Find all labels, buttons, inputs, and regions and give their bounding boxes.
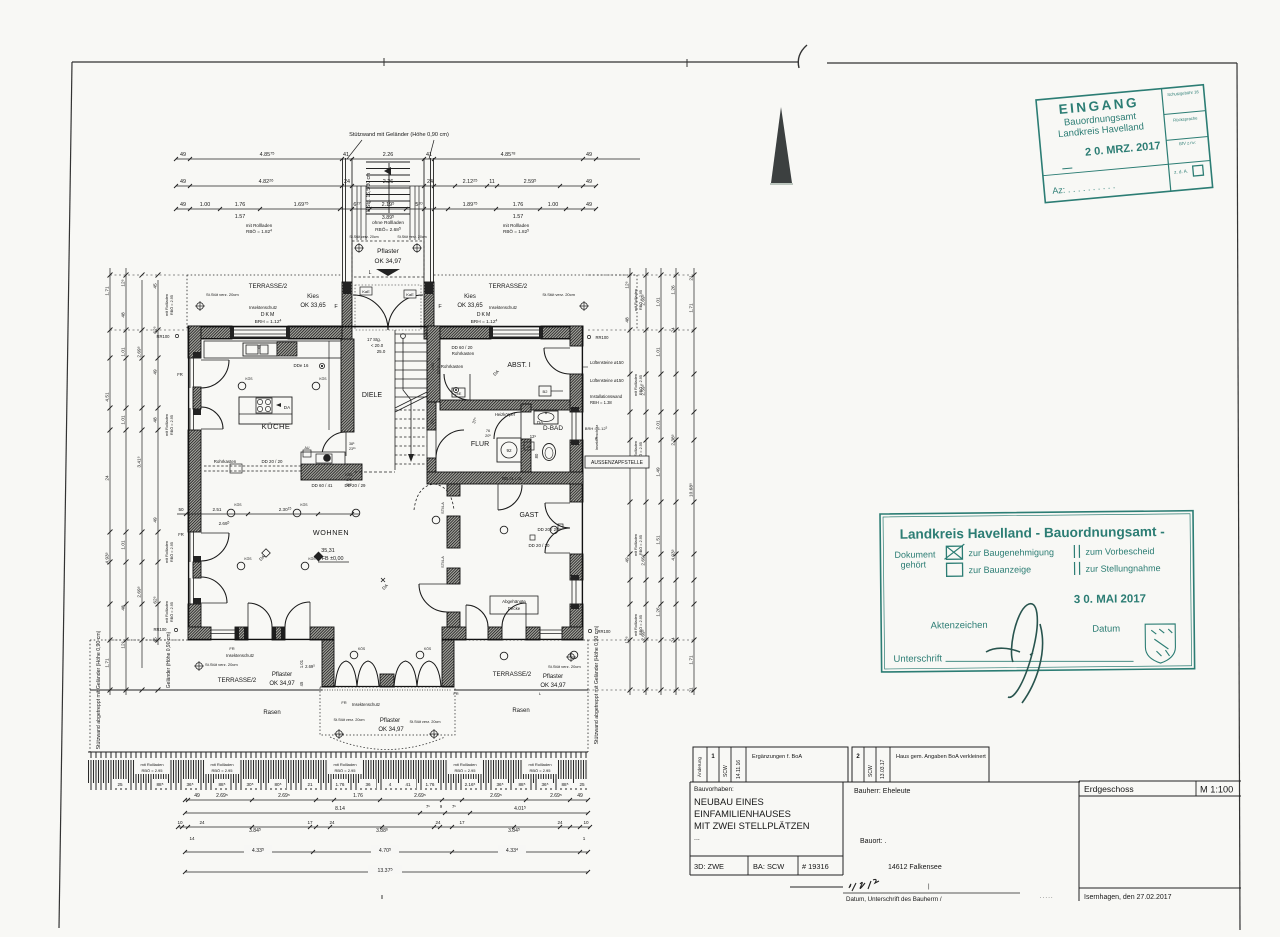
svg-text:24: 24 — [329, 820, 335, 825]
svg-text:mit Rollladen: mit Rollladen — [453, 762, 476, 767]
svg-text:9: 9 — [440, 804, 443, 809]
svg-text:RBÖ = 1.825: RBÖ = 1.825 — [503, 228, 529, 234]
svg-text:zur Stellungnahme: zur Stellungnahme — [1086, 563, 1161, 574]
svg-text:1.8975: 1.8975 — [463, 201, 478, 208]
svg-text:49: 49 — [180, 179, 186, 185]
svg-text:DDe 16: DDe 16 — [294, 363, 309, 368]
svg-text:Insektenschutz: Insektenschutz — [352, 702, 380, 707]
svg-text:Rohrkasten: Rohrkasten — [452, 351, 475, 356]
svg-text:2.26: 2.26 — [383, 179, 394, 185]
svg-text:FR: FR — [453, 691, 458, 696]
svg-text:48: 48 — [121, 312, 127, 318]
svg-text:1.71: 1.71 — [689, 655, 695, 665]
svg-text:KÖS: KÖS — [308, 557, 316, 561]
svg-text:1.00: 1.00 — [200, 202, 211, 208]
svg-text:# 19316: # 19316 — [802, 862, 829, 871]
svg-text:St.Stüt verz. 20cm: St.Stüt verz. 20cm — [548, 664, 581, 669]
svg-text:3D: ZWE: 3D: ZWE — [694, 862, 724, 871]
svg-text:36⁵: 36⁵ — [186, 782, 193, 787]
svg-text:z. d. A.: z. d. A. — [1174, 169, 1188, 175]
svg-text:DA: DA — [381, 583, 389, 591]
svg-text:. . . . .: . . . . . — [1040, 894, 1053, 900]
svg-text:AB: AB — [527, 445, 532, 449]
svg-text:FLUR: FLUR — [471, 441, 489, 448]
svg-text:14: 14 — [189, 836, 195, 841]
svg-text:L: L — [369, 270, 372, 276]
svg-text:KÖS: KÖS — [245, 377, 253, 381]
svg-text:21: 21 — [307, 782, 313, 787]
svg-text:36: 36 — [365, 782, 371, 787]
svg-text:STI/LA: STI/LA — [441, 556, 445, 568]
svg-text:RBÖ = 2.95: RBÖ = 2.95 — [170, 415, 174, 435]
svg-text:3.886: 3.886 — [376, 828, 388, 834]
svg-text:1.71: 1.71 — [105, 658, 111, 668]
svg-text:BfV z.nv:: BfV z.nv: — [1179, 140, 1196, 146]
svg-text:St.Stüt verz. 20cm: St.Stüt verz. 20cm — [333, 718, 364, 722]
svg-text:49: 49 — [180, 202, 186, 208]
svg-text:RBÖ = 2.95: RBÖ = 2.95 — [529, 768, 551, 773]
svg-text:17: 17 — [459, 820, 465, 825]
svg-text:49: 49 — [577, 793, 583, 799]
svg-text:OK 34,97: OK 34,97 — [540, 683, 566, 689]
svg-text:FR: FR — [178, 532, 184, 537]
svg-text:1.76: 1.76 — [353, 793, 363, 799]
svg-text:92: 92 — [506, 448, 512, 453]
svg-text:1.01: 1.01 — [121, 415, 127, 425]
svg-text:STI/LA: STI/LA — [441, 502, 445, 514]
svg-text:DD 20 / 20: DD 20 / 20 — [262, 459, 284, 464]
svg-text:2.595: 2.595 — [524, 178, 537, 185]
svg-text:3.41⁵: 3.41⁵ — [137, 456, 143, 467]
svg-text:RBÖ = 2.95: RBÖ = 2.95 — [170, 602, 174, 622]
svg-text:24: 24 — [435, 820, 441, 825]
svg-text:4.8578: 4.8578 — [501, 151, 516, 158]
svg-text:OK 33,65: OK 33,65 — [300, 303, 326, 309]
svg-text:OK 34,97: OK 34,97 — [378, 727, 404, 733]
svg-text:88⁵: 88⁵ — [218, 782, 225, 787]
svg-text:AU: AU — [305, 446, 310, 450]
svg-text:17 Stg.: 17 Stg. — [367, 337, 381, 342]
svg-text:gehört: gehört — [900, 560, 926, 570]
svg-text:2.69⁵: 2.69⁵ — [414, 793, 426, 799]
svg-text:DD 20 / 20: DD 20 / 20 — [538, 527, 560, 532]
svg-text:1: 1 — [583, 836, 586, 841]
svg-text:DD 20 / 19: DD 20 / 19 — [437, 358, 441, 374]
svg-text:WOHNEN: WOHNEN — [313, 528, 349, 537]
svg-text:KÖS: KÖS — [300, 503, 308, 507]
svg-text:RBH = 1.38: RBH = 1.38 — [590, 400, 612, 405]
svg-text:Kies: Kies — [464, 294, 476, 300]
svg-text:NEUBAU EINES: NEUBAU EINES — [694, 796, 764, 807]
svg-text:< 20.0: < 20.0 — [371, 343, 384, 348]
svg-text:4.015: 4.015 — [514, 806, 526, 812]
svg-text:Rohrkasten: Rohrkasten — [214, 459, 237, 464]
svg-text:D-BAD: D-BAD — [543, 425, 563, 432]
svg-text:KÖS: KÖS — [319, 377, 327, 381]
svg-text:ohne Rollladen: ohne Rollladen — [372, 220, 404, 226]
svg-text:RBÖ = 2.95: RBÖ = 2.95 — [170, 295, 174, 315]
svg-text:2.3015: 2.3015 — [279, 507, 292, 512]
svg-text:RR100: RR100 — [153, 627, 167, 632]
svg-text:mit Rollladen: mit Rollladen — [503, 223, 530, 228]
svg-text:2.01: 2.01 — [656, 420, 662, 430]
svg-text:10: 10 — [583, 820, 589, 825]
svg-text:7⁵: 7⁵ — [426, 804, 430, 809]
svg-text:RBÖ = 2.95: RBÖ = 2.95 — [639, 375, 643, 395]
svg-text:EINFAMILIENHAUSES: EINFAMILIENHAUSES — [694, 808, 791, 819]
svg-text:2.695: 2.695 — [219, 521, 230, 526]
svg-text:mit Rollladen: mit Rollladen — [634, 289, 638, 311]
svg-text:Lüftensteine ø150: Lüftensteine ø150 — [590, 378, 624, 383]
svg-text:48: 48 — [153, 417, 159, 423]
svg-text:RBÖ = 2.95: RBÖ = 2.95 — [639, 535, 643, 555]
svg-text:DD 60 / 20: DD 60 / 20 — [452, 345, 474, 350]
svg-text:FR: FR — [229, 646, 234, 651]
svg-text:KÖS: KÖS — [244, 557, 252, 561]
svg-text:mit Rollladen: mit Rollladen — [165, 294, 169, 316]
svg-text:49: 49 — [586, 202, 592, 208]
svg-text:24: 24 — [199, 820, 205, 825]
svg-text:1.01: 1.01 — [299, 659, 304, 668]
svg-text:36⁵: 36⁵ — [541, 782, 548, 787]
svg-text:mit Rollladen: mit Rollladen — [634, 614, 638, 636]
svg-text:13.03.17: 13.03.17 — [880, 759, 886, 779]
svg-text:49: 49 — [586, 152, 592, 158]
svg-text:38⁵: 38⁵ — [349, 442, 355, 446]
svg-text:DIELE: DIELE — [362, 392, 383, 399]
svg-text:368: 368 — [346, 483, 352, 487]
svg-text:KÖS: KÖS — [234, 503, 242, 507]
svg-text:1.71: 1.71 — [105, 286, 111, 296]
svg-text:...: ... — [694, 835, 700, 842]
svg-text:35,31: 35,31 — [321, 548, 335, 554]
svg-text:49: 49 — [586, 179, 592, 185]
svg-text:RR100: RR100 — [156, 334, 170, 339]
svg-text:RR100: RR100 — [595, 335, 609, 340]
svg-text:1.57: 1.57 — [513, 214, 524, 220]
svg-text:St.Stüt verz. 20cm: St.Stüt verz. 20cm — [205, 662, 238, 667]
svg-text:F: F — [438, 304, 442, 310]
svg-text:49: 49 — [153, 517, 159, 523]
svg-text:2.1225: 2.1225 — [463, 178, 478, 185]
svg-text:20⁵: 20⁵ — [485, 434, 491, 438]
svg-text:zur Baugenehmigung: zur Baugenehmigung — [968, 547, 1054, 558]
svg-text:25: 25 — [117, 782, 123, 787]
svg-text:RBÖ = 2.95: RBÖ = 2.95 — [170, 542, 174, 562]
svg-text:24: 24 — [344, 179, 350, 185]
svg-text:St.Stüt verz. 20cm: St.Stüt verz. 20cm — [542, 292, 575, 297]
svg-text:DKM: DKM — [477, 312, 492, 318]
svg-text:Landkreis Havelland - Bauordnu: Landkreis Havelland - Bauordnungsamt - — [900, 524, 1165, 542]
svg-text:1: 1 — [711, 754, 715, 760]
svg-text:88⁵: 88⁵ — [561, 782, 568, 787]
svg-text:TERRASSE/2: TERRASSE/2 — [249, 283, 288, 290]
svg-text:RBÖ = 2.95: RBÖ = 2.95 — [639, 290, 643, 310]
svg-text:8.14: 8.14 — [335, 806, 345, 812]
svg-text:mit Rollladen: mit Rollladen — [165, 414, 169, 436]
svg-text:RBÖ = 2.95: RBÖ = 2.95 — [141, 768, 163, 773]
svg-text:2.51: 2.51 — [213, 507, 222, 512]
svg-text:DD 60 / 41: DD 60 / 41 — [312, 483, 334, 488]
svg-text:1.76: 1.76 — [513, 202, 524, 208]
svg-text:OK 33,65: OK 33,65 — [457, 303, 483, 309]
svg-text:2.26: 2.26 — [383, 152, 394, 158]
svg-text:24: 24 — [427, 179, 433, 185]
svg-text:4.51: 4.51 — [105, 392, 111, 402]
svg-text:KaE: KaE — [406, 292, 414, 297]
svg-text:B2: B2 — [543, 389, 549, 394]
svg-text:MIT ZWEI STELLPLÄTZEN: MIT ZWEI STELLPLÄTZEN — [694, 820, 809, 831]
svg-text:St.Stüt verz. 20cm: St.Stüt verz. 20cm — [349, 235, 378, 239]
svg-text:17: 17 — [307, 820, 313, 825]
svg-text:3 0. MAI 2017: 3 0. MAI 2017 — [1074, 593, 1146, 606]
svg-text:SCW: SCW — [868, 765, 874, 777]
svg-text:RBÖ = 1.824: RBÖ = 1.824 — [246, 228, 272, 234]
svg-text:St.Stüt verz. 20cm: St.Stüt verz. 20cm — [409, 720, 440, 724]
svg-text:4: 4 — [389, 782, 392, 787]
svg-text:88⁵: 88⁵ — [156, 782, 163, 787]
svg-text:Insektenschutz: Insektenschutz — [226, 653, 254, 658]
svg-text:8 Stg. 16,5/30 cm: 8 Stg. 16,5/30 cm — [366, 173, 372, 212]
svg-text:GAST: GAST — [519, 512, 539, 519]
svg-text:30⁵: 30⁵ — [246, 782, 253, 787]
svg-text:80: 80 — [534, 453, 539, 458]
svg-text:DA: DA — [492, 369, 500, 377]
svg-text:Pflaster: Pflaster — [543, 674, 563, 680]
svg-text:4.8226: 4.8226 — [259, 178, 274, 185]
svg-text:1.26: 1.26 — [671, 285, 677, 295]
svg-text:KÖS: KÖS — [345, 473, 353, 477]
svg-text:2.69⁵: 2.69⁵ — [137, 586, 143, 597]
svg-text:Geländer (Höhe 0,90 cm): Geländer (Höhe 0,90 cm) — [166, 631, 172, 688]
svg-text:L: L — [539, 691, 542, 696]
svg-text:DKM: DKM — [261, 312, 276, 318]
svg-text:2.69⁵: 2.69⁵ — [278, 793, 290, 799]
svg-text:1.6975: 1.6975 — [294, 201, 309, 208]
svg-text:Kies: Kies — [307, 294, 319, 300]
svg-text:Rasen: Rasen — [263, 710, 280, 716]
svg-text:Insektenschutz: Insektenschutz — [595, 425, 599, 450]
svg-text:11: 11 — [489, 179, 495, 185]
svg-text:2.695: 2.695 — [305, 664, 315, 669]
svg-text:St.Stüt verz. 20cm: St.Stüt verz. 20cm — [206, 292, 239, 297]
svg-text:Erdgeschoss: Erdgeschoss — [1084, 784, 1134, 794]
svg-text:OK 34,97: OK 34,97 — [269, 681, 295, 687]
svg-text:36⁵: 36⁵ — [496, 782, 503, 787]
svg-text:49: 49 — [180, 152, 186, 158]
svg-text:176: 176 — [346, 478, 352, 482]
svg-text:62⁵: 62⁵ — [153, 596, 159, 603]
svg-text:mit Rollladen: mit Rollladen — [210, 762, 233, 767]
svg-text:AUSSENZAPFSTELLE: AUSSENZAPFSTELLE — [591, 460, 644, 466]
svg-text:1.01: 1.01 — [121, 540, 127, 550]
svg-text:41: 41 — [405, 782, 411, 787]
svg-text:45: 45 — [299, 681, 304, 686]
svg-text:14612 Falkensee: 14612 Falkensee — [888, 864, 942, 871]
svg-text:25: 25 — [579, 782, 585, 787]
svg-text:2.16⁵: 2.16⁵ — [465, 782, 476, 787]
svg-text:Insektenschutz: Insektenschutz — [249, 305, 277, 310]
svg-text:25.0: 25.0 — [377, 349, 386, 354]
svg-text:41: 41 — [426, 152, 432, 158]
svg-text:OD 31 / 31: OD 31 / 31 — [502, 476, 523, 481]
svg-text:12⁵: 12⁵ — [530, 434, 537, 439]
svg-text:Rücksprache: Rücksprache — [1173, 115, 1198, 122]
svg-text:TERRASSE/2: TERRASSE/2 — [493, 671, 532, 678]
svg-text:3.845: 3.845 — [508, 828, 520, 834]
svg-text:Az: . . . . . . . . . .: Az: . . . . . . . . . . — [1052, 180, 1116, 196]
svg-text:49: 49 — [625, 557, 631, 563]
svg-text:Dokument: Dokument — [894, 549, 936, 559]
svg-text:BRH = 1.124: BRH = 1.124 — [255, 319, 282, 325]
svg-text:Decke: Decke — [508, 606, 521, 611]
svg-text:Rohrkasten: Rohrkasten — [441, 364, 464, 369]
svg-text:TERRASSE/2: TERRASSE/2 — [489, 283, 528, 290]
svg-text:zur Bauanzeige: zur Bauanzeige — [969, 564, 1032, 575]
svg-text:Stützwand mit Geländer (Höhe 0: Stützwand mit Geländer (Höhe 0,90 cm) — [349, 132, 449, 138]
svg-text:FR: FR — [341, 700, 346, 705]
svg-text:24: 24 — [557, 820, 563, 825]
svg-text:mit Rollladen: mit Rollladen — [634, 374, 638, 396]
svg-text:mit Rollladen: mit Rollladen — [165, 601, 169, 623]
svg-text:KÜCHE: KÜCHE — [262, 422, 291, 431]
svg-text:2 0. MRZ. 2017: 2 0. MRZ. 2017 — [1085, 140, 1162, 159]
svg-text:Schutzgebühr 16: Schutzgebühr 16 — [1167, 89, 1200, 97]
svg-text:SCW: SCW — [723, 765, 729, 777]
svg-text:ABST. I: ABST. I — [507, 362, 530, 369]
svg-text:BA: SCW: BA: SCW — [753, 862, 784, 871]
svg-text:Unterschrift: Unterschrift — [893, 653, 942, 665]
svg-text:2.69⁵: 2.69⁵ — [490, 793, 502, 799]
svg-text:Abgehängte: Abgehängte — [502, 599, 526, 604]
svg-text:Aktenzeichen: Aktenzeichen — [931, 620, 988, 632]
svg-text:45: 45 — [153, 283, 159, 289]
svg-text:DA: DA — [258, 554, 266, 562]
svg-text:KaE: KaE — [362, 289, 370, 294]
svg-text:Änderung: Änderung — [696, 757, 702, 777]
svg-text:KÖS: KÖS — [358, 647, 366, 651]
svg-text:DA: DA — [284, 405, 291, 410]
svg-text:Installationswand: Installationswand — [590, 394, 623, 399]
svg-text:49: 49 — [194, 793, 200, 799]
svg-text:mit Rollladen: mit Rollladen — [140, 762, 163, 767]
svg-text:50: 50 — [178, 507, 184, 512]
svg-text:12⁵: 12⁵ — [625, 281, 631, 288]
svg-text:Bauvorhaben:: Bauvorhaben: — [694, 786, 734, 793]
svg-text:2.195: 2.195 — [382, 201, 395, 208]
svg-text:RBÖ= 2.685: RBÖ= 2.685 — [375, 226, 401, 233]
svg-text:KÖS: KÖS — [424, 647, 432, 651]
svg-text:Stützwand abgetreppt mit Gelän: Stützwand abgetreppt mit Geländer (Höhe … — [96, 630, 102, 749]
svg-text:BRH = 1.124: BRH = 1.124 — [471, 319, 498, 325]
svg-text:1.76: 1.76 — [336, 782, 345, 787]
svg-text:OK 34,97: OK 34,97 — [374, 258, 401, 265]
svg-text:Haus gem. Angaben BoA verklein: Haus gem. Angaben BoA verkleinert — [896, 754, 986, 760]
svg-text:37⁵: 37⁵ — [471, 416, 478, 424]
svg-text:mit Rollladen: mit Rollladen — [165, 541, 169, 563]
svg-text:3.845: 3.845 — [249, 828, 261, 834]
svg-text:4.8575: 4.8575 — [260, 151, 275, 158]
svg-text:1.26: 1.26 — [656, 607, 662, 617]
svg-text:RBÖ = 2.95: RBÖ = 2.95 — [211, 768, 233, 773]
svg-text:Datum, Unterschrift des Bauher: Datum, Unterschrift des Bauherrn / — [846, 896, 942, 903]
svg-text:Ergänzungen f. BoA: Ergänzungen f. BoA — [752, 754, 802, 760]
svg-text:Insektenschutz: Insektenschutz — [489, 305, 517, 310]
svg-text:48: 48 — [121, 605, 127, 611]
svg-text:TERRASSE/2: TERRASSE/2 — [218, 677, 257, 684]
svg-text:10.68⁵: 10.68⁵ — [689, 483, 695, 497]
svg-text:1.57: 1.57 — [235, 214, 246, 220]
svg-text:mit Rollladen: mit Rollladen — [246, 223, 273, 228]
svg-text:41: 41 — [343, 152, 349, 158]
svg-text:FR: FR — [177, 372, 183, 377]
svg-text:M 1:100: M 1:100 — [1200, 785, 1233, 795]
svg-text:DD 20 / 20: DD 20 / 20 — [529, 543, 551, 548]
svg-text:RBÖ = 2.95: RBÖ = 2.95 — [334, 768, 356, 773]
svg-text:mit Rollladen: mit Rollladen — [333, 762, 356, 767]
svg-text:1.71: 1.71 — [689, 303, 695, 313]
svg-text:mit Rollladen: mit Rollladen — [634, 534, 638, 556]
svg-text:1.00: 1.00 — [548, 202, 559, 208]
svg-text:1.01: 1.01 — [656, 297, 662, 307]
svg-text:24: 24 — [105, 475, 111, 481]
svg-text:1.51: 1.51 — [656, 535, 662, 545]
svg-text:St.Stüt verz. 20cm: St.Stüt verz. 20cm — [397, 235, 426, 239]
svg-text:mit Rollladen: mit Rollladen — [528, 762, 551, 767]
svg-text:Bauort: .: Bauort: . — [860, 838, 887, 845]
svg-text:13.375: 13.375 — [377, 868, 392, 874]
svg-text:88⁵: 88⁵ — [518, 782, 525, 787]
svg-text:RBÖ = 2.95: RBÖ = 2.95 — [639, 615, 643, 635]
svg-text:zum Vorbescheid: zum Vorbescheid — [1085, 546, 1154, 557]
svg-text:Datum: Datum — [1092, 623, 1120, 634]
svg-text:2.69⁵: 2.69⁵ — [216, 793, 228, 799]
svg-text:2.69⁵: 2.69⁵ — [550, 793, 562, 799]
svg-text:Pflaster: Pflaster — [272, 672, 292, 678]
svg-text:7⁵: 7⁵ — [452, 804, 456, 809]
svg-text:2.69⁵: 2.69⁵ — [137, 346, 143, 357]
svg-text:10: 10 — [177, 820, 183, 825]
svg-text:80⁵: 80⁵ — [274, 782, 281, 787]
svg-text:49: 49 — [153, 369, 159, 375]
svg-text:76: 76 — [486, 429, 490, 433]
svg-text:Heizkörper: Heizkörper — [495, 412, 516, 417]
svg-text:Pflaster: Pflaster — [380, 718, 400, 724]
svg-text:Pflaster: Pflaster — [377, 248, 400, 255]
svg-text:2: 2 — [856, 754, 860, 760]
svg-text:RBÖ = 2.95: RBÖ = 2.95 — [454, 768, 476, 773]
svg-text:Isernhagen, den 27.02.2017: Isernhagen, den 27.02.2017 — [1084, 894, 1172, 901]
svg-text:14.11.16: 14.11.16 — [736, 760, 742, 779]
svg-text:1.49: 1.49 — [656, 467, 662, 477]
svg-text:12⁵: 12⁵ — [121, 279, 127, 286]
svg-text:1.76: 1.76 — [426, 782, 435, 787]
svg-text:F: F — [334, 304, 338, 310]
svg-text:Rasen: Rasen — [512, 708, 529, 714]
svg-text:HSV: HSV — [431, 362, 435, 370]
svg-text:1.01: 1.01 — [121, 347, 127, 357]
svg-text:Lüftensteine ø150: Lüftensteine ø150 — [590, 360, 624, 365]
svg-text:1.76: 1.76 — [235, 202, 246, 208]
svg-text:1.01: 1.01 — [656, 347, 662, 357]
svg-text:Stützwand abgetreppt mit Gelän: Stützwand abgetreppt mit Geländer (Höhe … — [594, 625, 600, 744]
svg-text:23¹⁵: 23¹⁵ — [349, 447, 356, 451]
svg-text:48: 48 — [625, 317, 631, 323]
svg-text:|: | — [928, 884, 930, 890]
svg-text:Bauherr: Eheleute: Bauherr: Eheleute — [854, 788, 911, 795]
